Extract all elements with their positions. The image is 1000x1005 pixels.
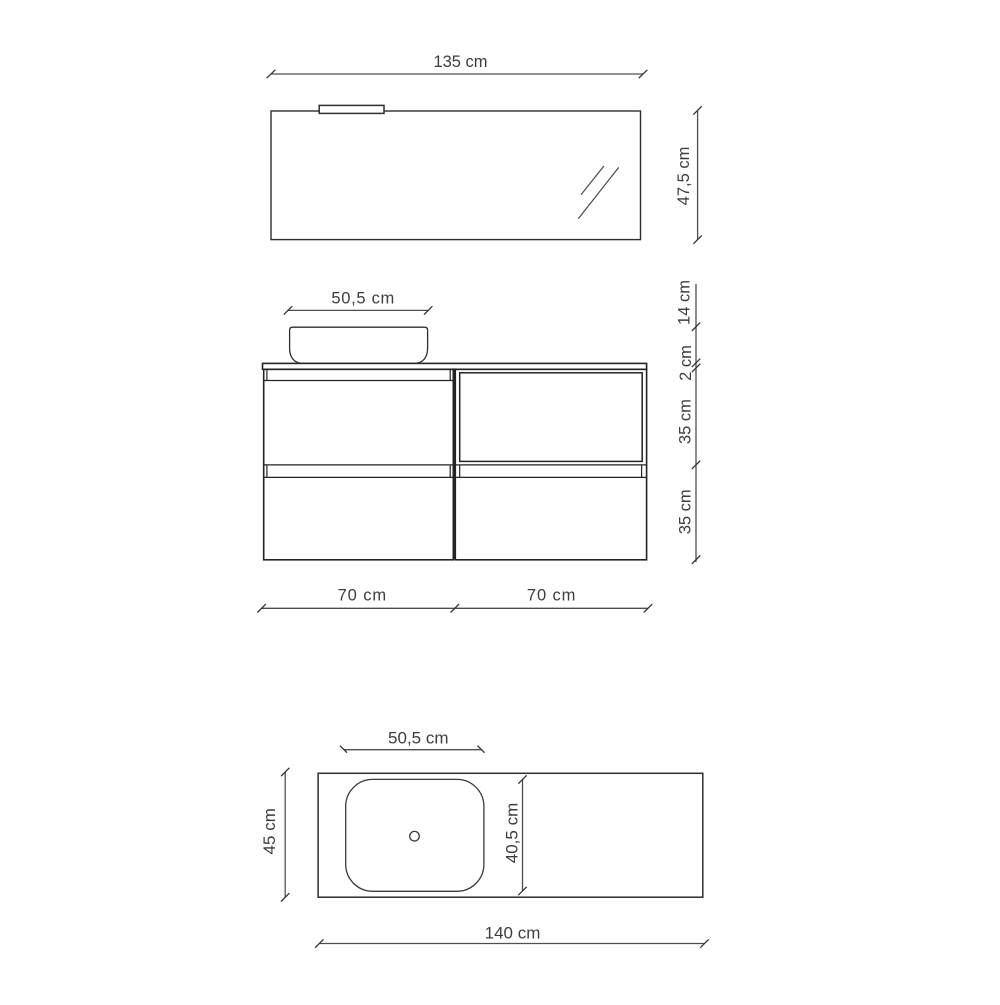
svg-text:47,5 cm: 47,5 cm [675,147,693,206]
svg-text:35 cm: 35 cm [677,489,695,534]
svg-text:135 cm: 135 cm [433,53,487,71]
svg-text:140 cm: 140 cm [485,923,541,942]
svg-text:50,5 cm: 50,5 cm [331,290,395,308]
svg-text:40,5 cm: 40,5 cm [502,803,521,863]
svg-text:14 cm: 14 cm [676,280,694,325]
svg-text:50,5 cm: 50,5 cm [388,729,448,748]
svg-text:45 cm: 45 cm [260,808,279,854]
svg-text:70 cm: 70 cm [527,587,576,605]
svg-text:70 cm: 70 cm [338,587,387,605]
svg-text:2 cm: 2 cm [677,345,695,381]
svg-text:35 cm: 35 cm [677,399,695,444]
